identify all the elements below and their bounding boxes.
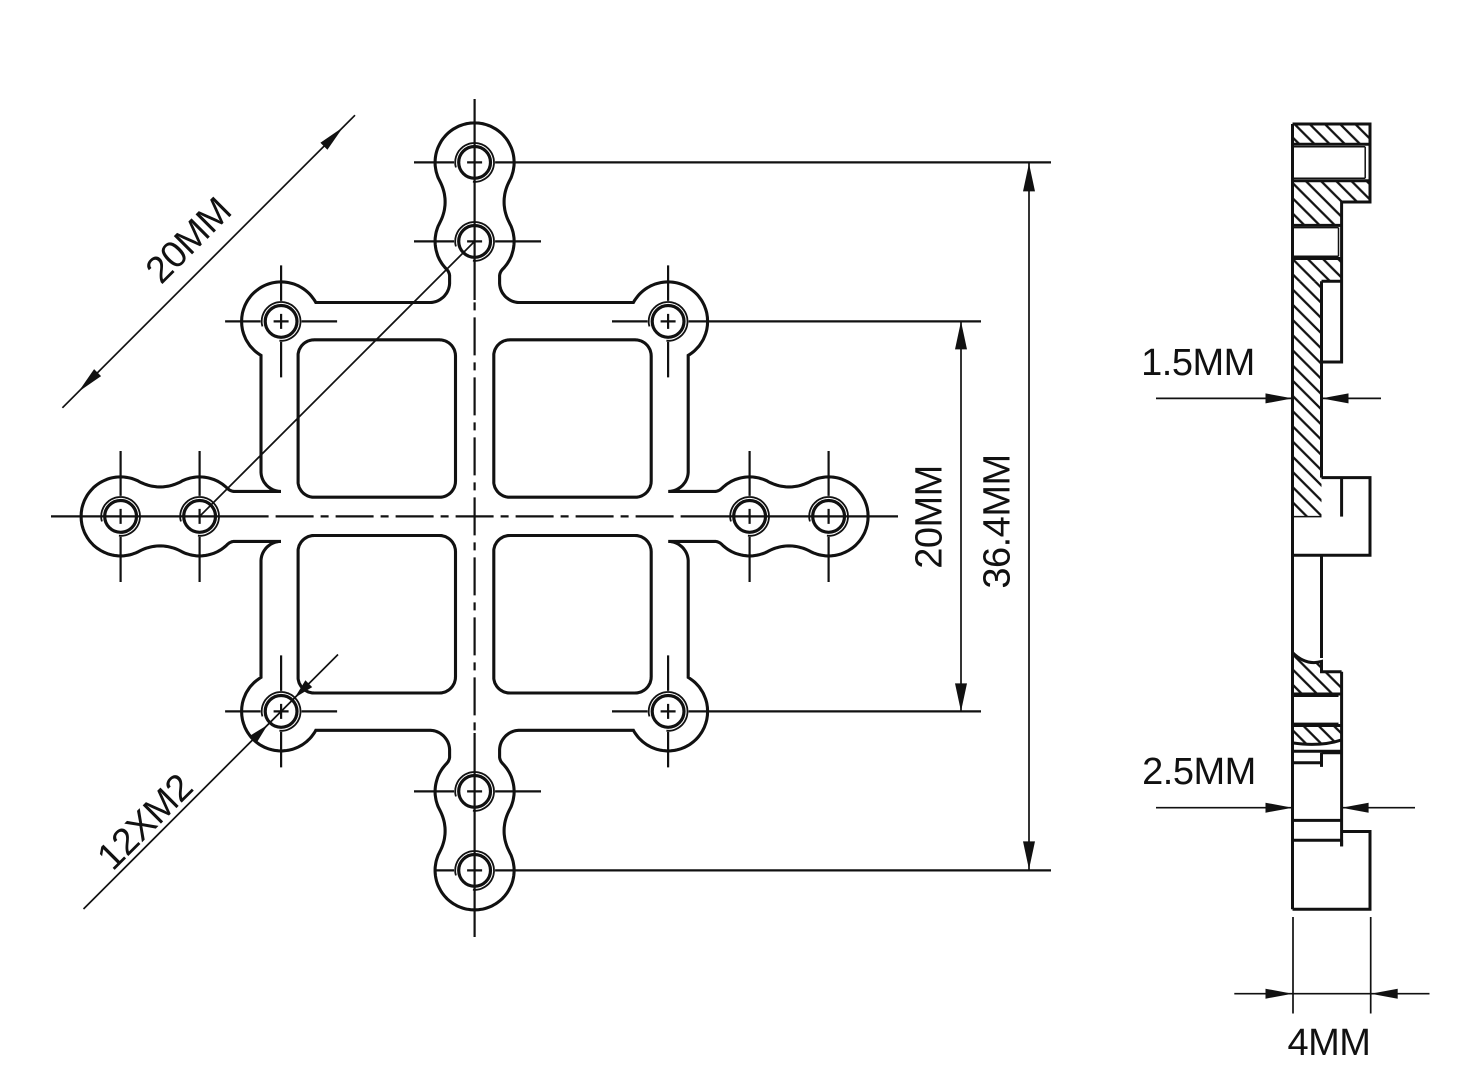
svg-text:36.4MM: 36.4MM (977, 454, 1019, 588)
svg-text:4MM: 4MM (1288, 1022, 1371, 1064)
svg-text:2.5MM: 2.5MM (1142, 751, 1256, 793)
svg-text:20MM: 20MM (909, 465, 951, 569)
svg-text:1.5MM: 1.5MM (1141, 342, 1255, 384)
